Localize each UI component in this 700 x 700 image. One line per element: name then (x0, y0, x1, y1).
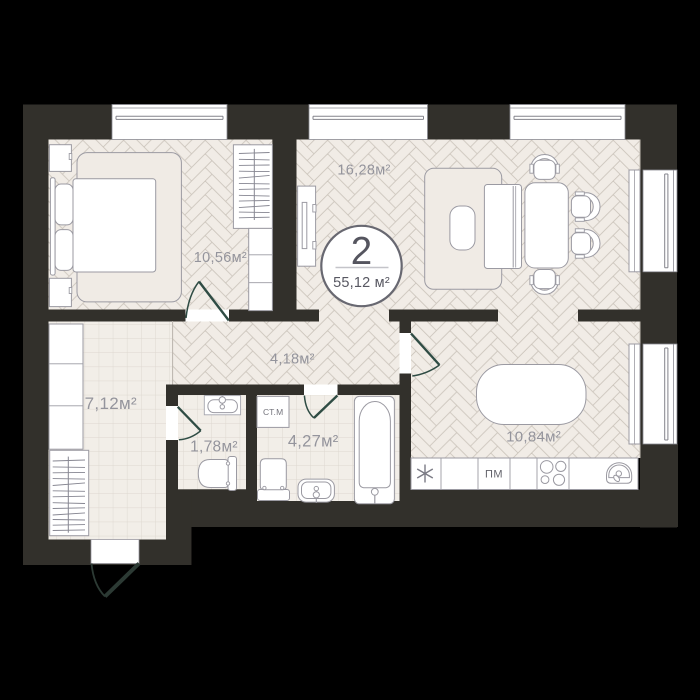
svg-text:16,28м²: 16,28м² (337, 163, 390, 179)
svg-text:4,18м²: 4,18м² (270, 351, 315, 367)
svg-text:1,78м²: 1,78м² (190, 439, 238, 456)
svg-text:4,27м²: 4,27м² (288, 433, 339, 451)
svg-text:7,12м²: 7,12м² (85, 394, 137, 413)
svg-text:10,84м²: 10,84м² (506, 429, 561, 446)
svg-text:55,12 м²: 55,12 м² (333, 275, 390, 291)
svg-text:2: 2 (351, 230, 372, 273)
svg-text:ПМ: ПМ (485, 469, 503, 481)
svg-text:СТ.М: СТ.М (263, 407, 283, 417)
svg-text:10,56м²: 10,56м² (194, 250, 247, 266)
